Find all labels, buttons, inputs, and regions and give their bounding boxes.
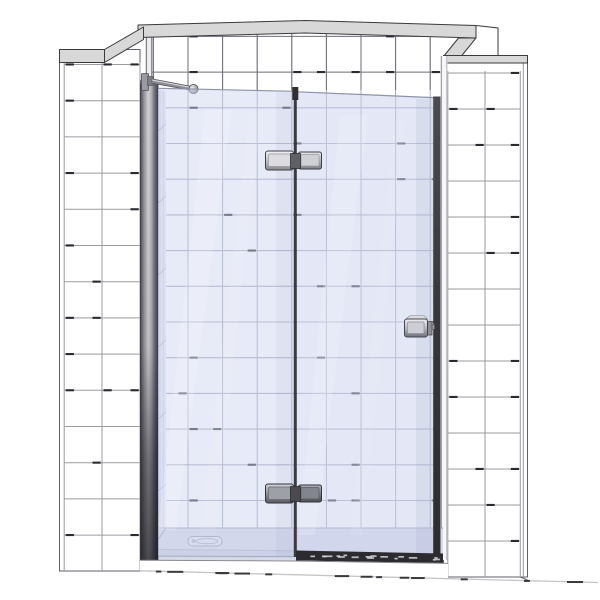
seal-dash [398, 556, 404, 558]
fixed-panel-bottom-edge [158, 556, 294, 557]
tile-tick [66, 353, 74, 355]
seal-dash [394, 558, 397, 560]
tile-tick [104, 63, 112, 65]
tile-tick [66, 172, 74, 174]
tile-tick [449, 360, 457, 362]
knob-face [408, 322, 425, 334]
tile-tick [66, 63, 74, 65]
tile-tick [66, 317, 74, 319]
cap-return-edge [476, 26, 498, 57]
tile-tick [511, 396, 519, 398]
tile-tick [66, 100, 74, 102]
left-wall-cap [60, 50, 105, 63]
tile-tick [66, 389, 74, 391]
tile-tick [131, 534, 139, 536]
tile-tick [104, 389, 112, 391]
tile-tick [487, 252, 495, 254]
floor-dash [234, 573, 250, 575]
floor-dash [167, 571, 183, 573]
floor-dash [411, 577, 425, 579]
tile-tick [511, 540, 519, 542]
cap-step-diagonal [444, 38, 477, 57]
seal-dash [310, 556, 315, 558]
panel-hinge-bottom [266, 484, 322, 503]
floor-dash [335, 575, 349, 577]
knob-top-bevel [406, 316, 428, 320]
tile-tick [449, 396, 457, 398]
tile-tick [487, 108, 495, 110]
panel-hinge-top [266, 151, 322, 170]
tile-tick [511, 252, 519, 254]
tile-tick [131, 63, 139, 65]
floor-dash [265, 573, 272, 575]
seal-dash [343, 555, 347, 557]
tile-tick [93, 281, 101, 283]
hinge-face-left [269, 154, 291, 167]
profile-shade [141, 82, 159, 562]
tile-tick [476, 468, 484, 470]
tile-tick [66, 244, 74, 246]
left-wall-surface [60, 50, 141, 572]
tile-tick [131, 208, 139, 210]
left-tiled-wall [60, 50, 141, 572]
floor-dash [361, 576, 373, 578]
tile-tick [66, 534, 74, 536]
tile-tick [93, 462, 101, 464]
seal-dash [435, 559, 440, 561]
floor-dash [376, 576, 382, 578]
tile-tick [449, 108, 457, 110]
seal-dash [433, 559, 436, 561]
floor-dash [567, 581, 583, 583]
right-tiled-wall [444, 56, 528, 581]
hinge-face-right [301, 488, 319, 500]
tile-tick [352, 71, 360, 73]
hinge-face-right [301, 155, 319, 167]
tile-tick [511, 360, 519, 362]
right-wall-reveal [441, 56, 448, 560]
wall-mount-profile [141, 81, 159, 563]
shower-door-render [0, 0, 600, 600]
tile-tick [190, 71, 198, 73]
render-canvas [0, 0, 600, 600]
tile-tick [487, 504, 495, 506]
tile-tick [476, 144, 484, 146]
floor-edge [140, 560, 598, 583]
seal-dash [380, 556, 388, 558]
tile-tick [511, 216, 519, 218]
seal-dash [409, 557, 417, 559]
seal-dash [338, 556, 345, 558]
tile-tick [511, 468, 519, 470]
seal-dash [434, 557, 438, 559]
floor-dash [461, 578, 468, 580]
tile-tick [131, 389, 139, 391]
tile-tick [511, 72, 519, 74]
floor-dash [400, 577, 409, 579]
tile-tick [386, 71, 394, 73]
floor-dash [156, 571, 161, 573]
junction-top-block [292, 87, 298, 100]
hinge-face-left [269, 487, 291, 500]
seal-dash [370, 555, 376, 557]
right-wall-cap [444, 56, 528, 64]
seal-dash [352, 556, 359, 558]
tile-tick [511, 144, 519, 146]
floor-dash [524, 580, 530, 582]
seal-dash [324, 555, 332, 557]
tile-tick [93, 317, 101, 319]
floor-dash [219, 572, 227, 574]
hinge-pivot [291, 154, 301, 169]
hinge-pivot [291, 487, 301, 502]
tile-tick [317, 71, 325, 73]
tile-tick [131, 172, 139, 174]
tile-tick [293, 71, 301, 73]
tile-tick [432, 71, 440, 73]
